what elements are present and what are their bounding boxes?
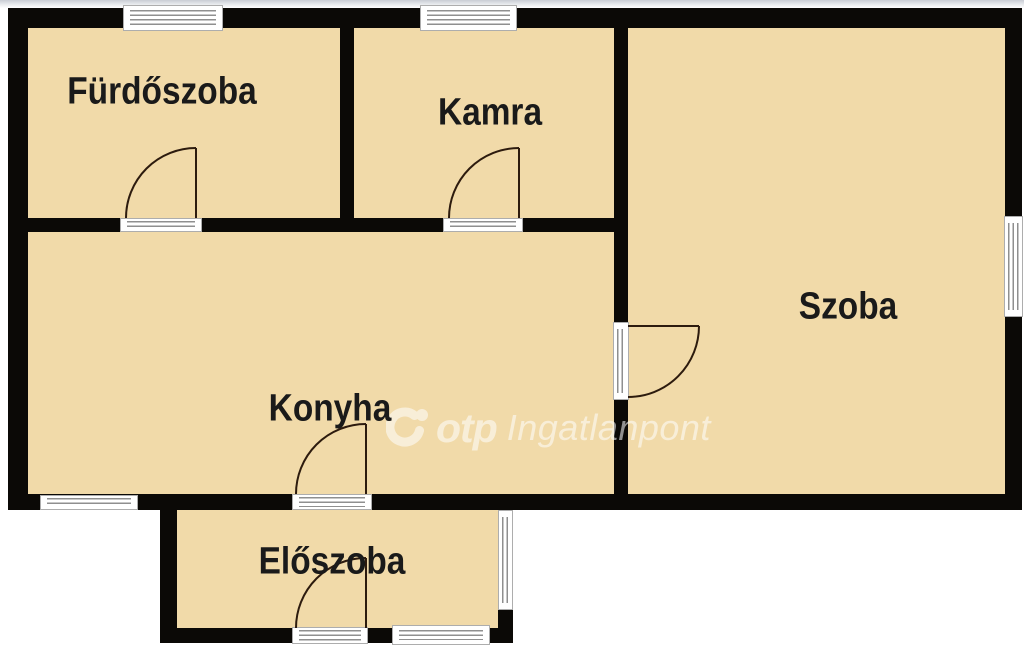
- door-threshold-kamra: [443, 218, 523, 232]
- wall-bottom-main: [8, 494, 1022, 510]
- door-threshold-szoba: [613, 322, 629, 400]
- window-furdoszoba: [123, 5, 223, 31]
- otp-logo-icon: [386, 403, 430, 453]
- door-threshold-furdoszoba: [120, 218, 202, 232]
- door-threshold-konyha-eloszoba: [292, 494, 372, 510]
- wall-eloszoba-left: [160, 510, 177, 643]
- wall-furdoszoba-kamra: [340, 28, 354, 232]
- room-label-konyha: Konyha: [269, 388, 392, 431]
- wall-inner-horizontal: [28, 218, 628, 232]
- room-label-kamra: Kamra: [438, 92, 542, 135]
- floor-plan: Fürdőszoba Kamra Szoba Konyha Előszoba o…: [0, 0, 1024, 646]
- room-label-eloszoba: Előszoba: [259, 541, 406, 584]
- watermark-suffix-text: Ingatlanpont: [507, 410, 711, 446]
- room-label-furdoszoba: Fürdőszoba: [67, 71, 256, 114]
- window-eloszoba-bottom: [392, 625, 490, 645]
- window-eloszoba-right: [498, 510, 513, 610]
- wall-left: [8, 8, 28, 510]
- window-konyha: [40, 495, 138, 510]
- window-kamra: [420, 5, 517, 31]
- watermark: otp Ingatlanpont: [386, 402, 711, 454]
- room-label-szoba: Szoba: [799, 286, 897, 329]
- watermark-brand-text: otp: [436, 408, 497, 449]
- door-threshold-entrance: [292, 627, 368, 644]
- wall-eloszoba-right-corner: [498, 608, 513, 643]
- window-szoba: [1004, 216, 1023, 317]
